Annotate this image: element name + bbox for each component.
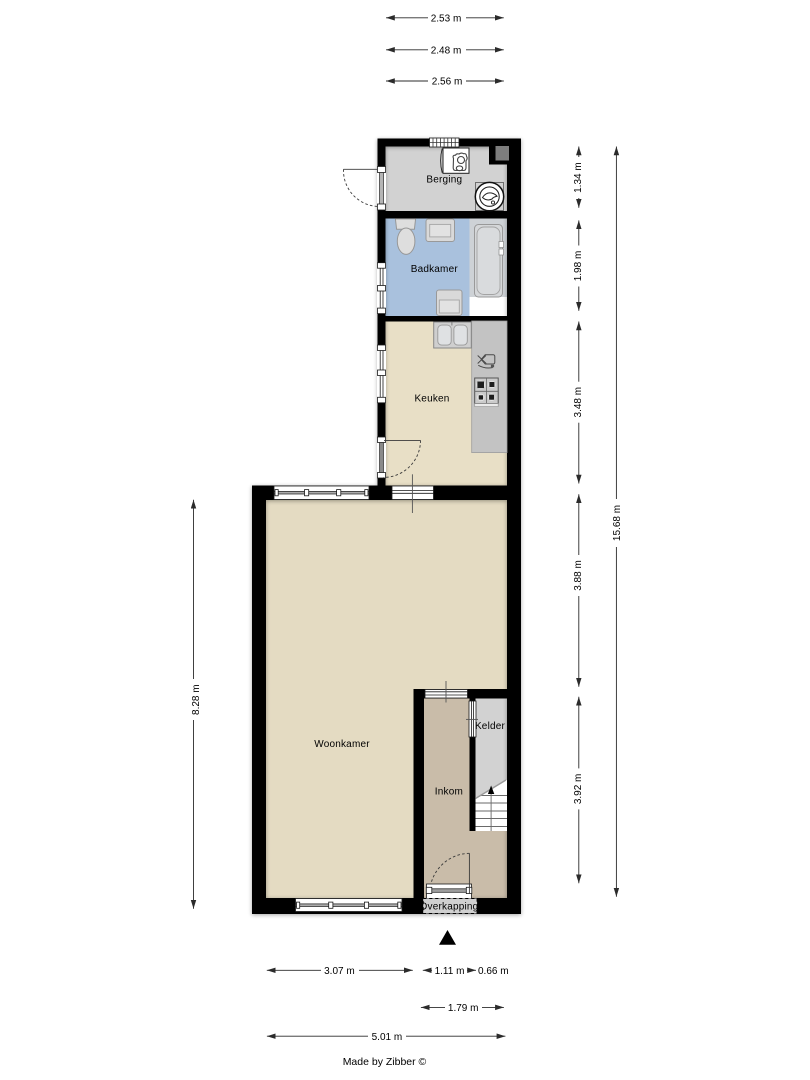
svg-text:Keuken: Keuken: [414, 393, 449, 404]
svg-text:0.66 m: 0.66 m: [478, 966, 509, 977]
svg-text:Berging: Berging: [426, 175, 462, 186]
svg-text:Badkamer: Badkamer: [411, 264, 459, 275]
svg-text:2.48 m: 2.48 m: [431, 45, 462, 56]
svg-text:Made by Zibber ©: Made by Zibber ©: [343, 1056, 427, 1068]
svg-text:Overkapping: Overkapping: [420, 902, 479, 913]
svg-text:Inkom: Inkom: [435, 786, 463, 797]
svg-text:2.56 m: 2.56 m: [432, 77, 463, 88]
svg-text:Woonkamer: Woonkamer: [314, 739, 370, 750]
svg-text:3.48 m: 3.48 m: [573, 387, 584, 418]
svg-text:1.79 m: 1.79 m: [448, 1003, 479, 1014]
svg-text:15.68 m: 15.68 m: [612, 505, 623, 541]
svg-text:8.28 m: 8.28 m: [191, 684, 202, 715]
svg-text:1.34 m: 1.34 m: [573, 162, 584, 193]
svg-text:5.01 m: 5.01 m: [372, 1032, 403, 1043]
svg-text:1.98 m: 1.98 m: [573, 251, 584, 282]
svg-text:Kelder: Kelder: [475, 721, 506, 732]
svg-text:2.53 m: 2.53 m: [431, 13, 462, 24]
svg-text:3.88 m: 3.88 m: [573, 560, 584, 591]
svg-text:1.11 m: 1.11 m: [435, 966, 465, 977]
svg-text:3.07 m: 3.07 m: [324, 966, 355, 977]
svg-text:3.92 m: 3.92 m: [573, 774, 584, 805]
